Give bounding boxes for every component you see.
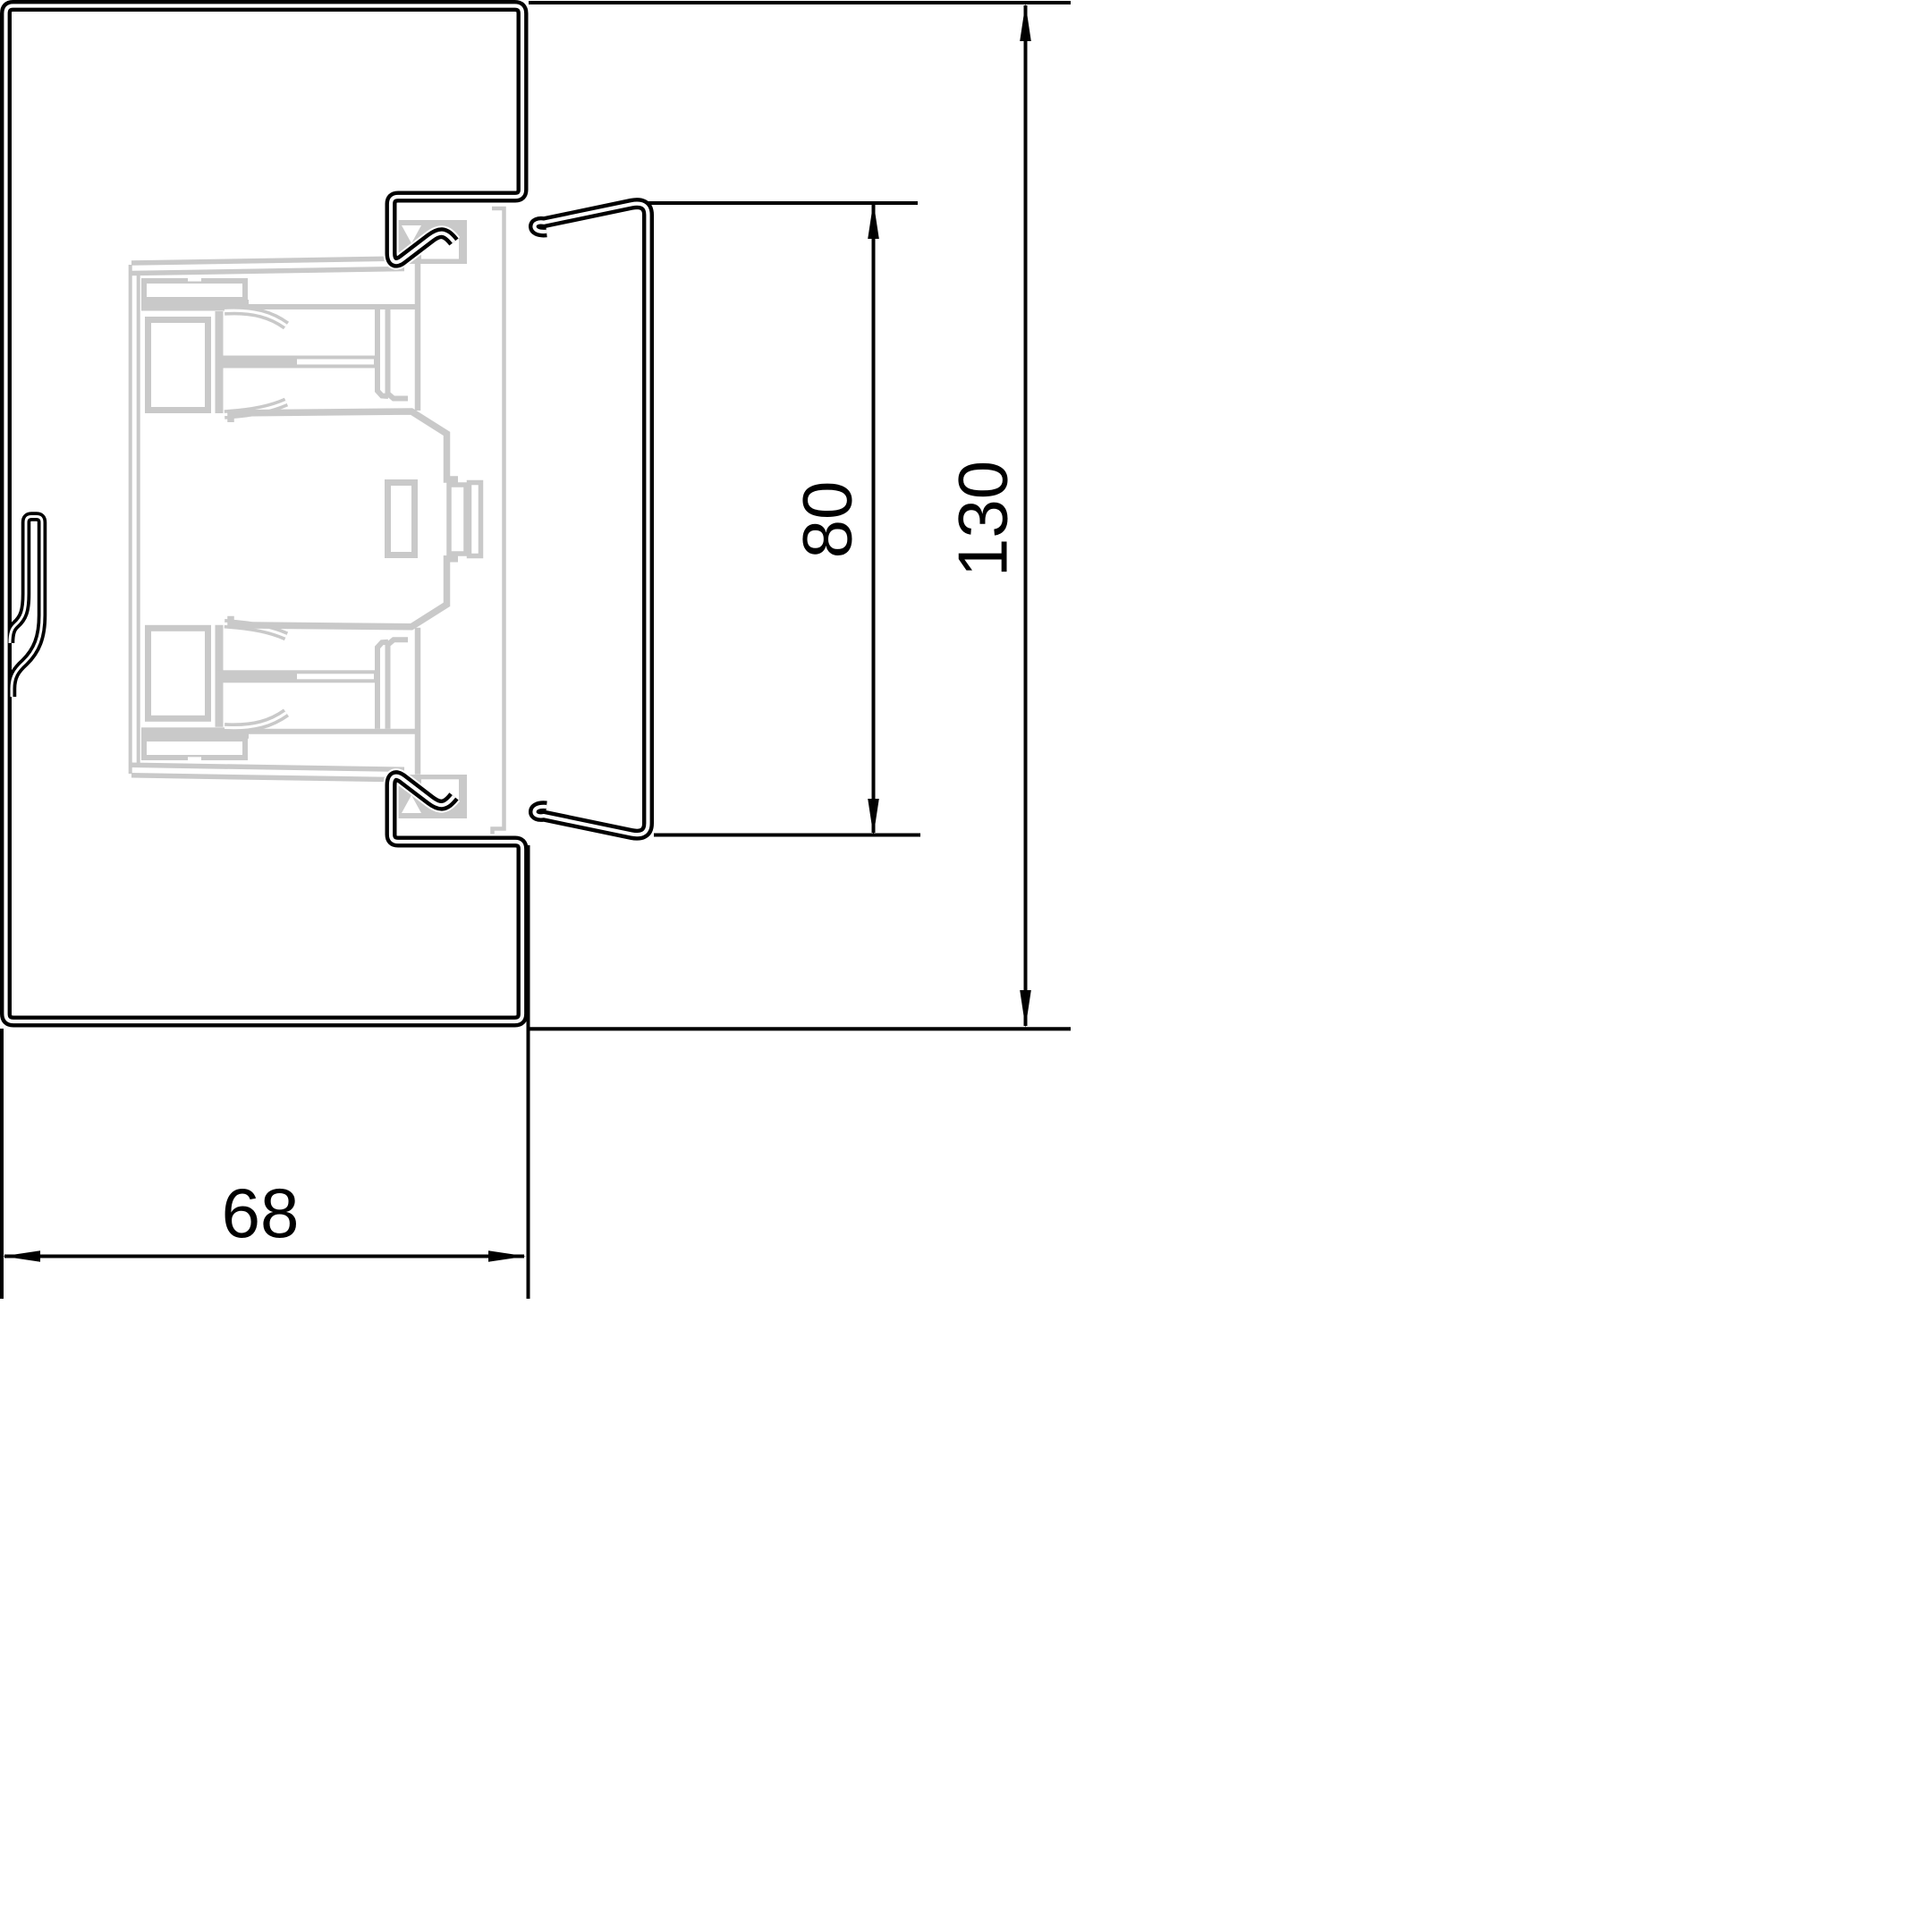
svg-text:130: 130 <box>944 461 1022 577</box>
svg-text:80: 80 <box>788 481 867 559</box>
svg-text:68: 68 <box>222 1174 300 1252</box>
